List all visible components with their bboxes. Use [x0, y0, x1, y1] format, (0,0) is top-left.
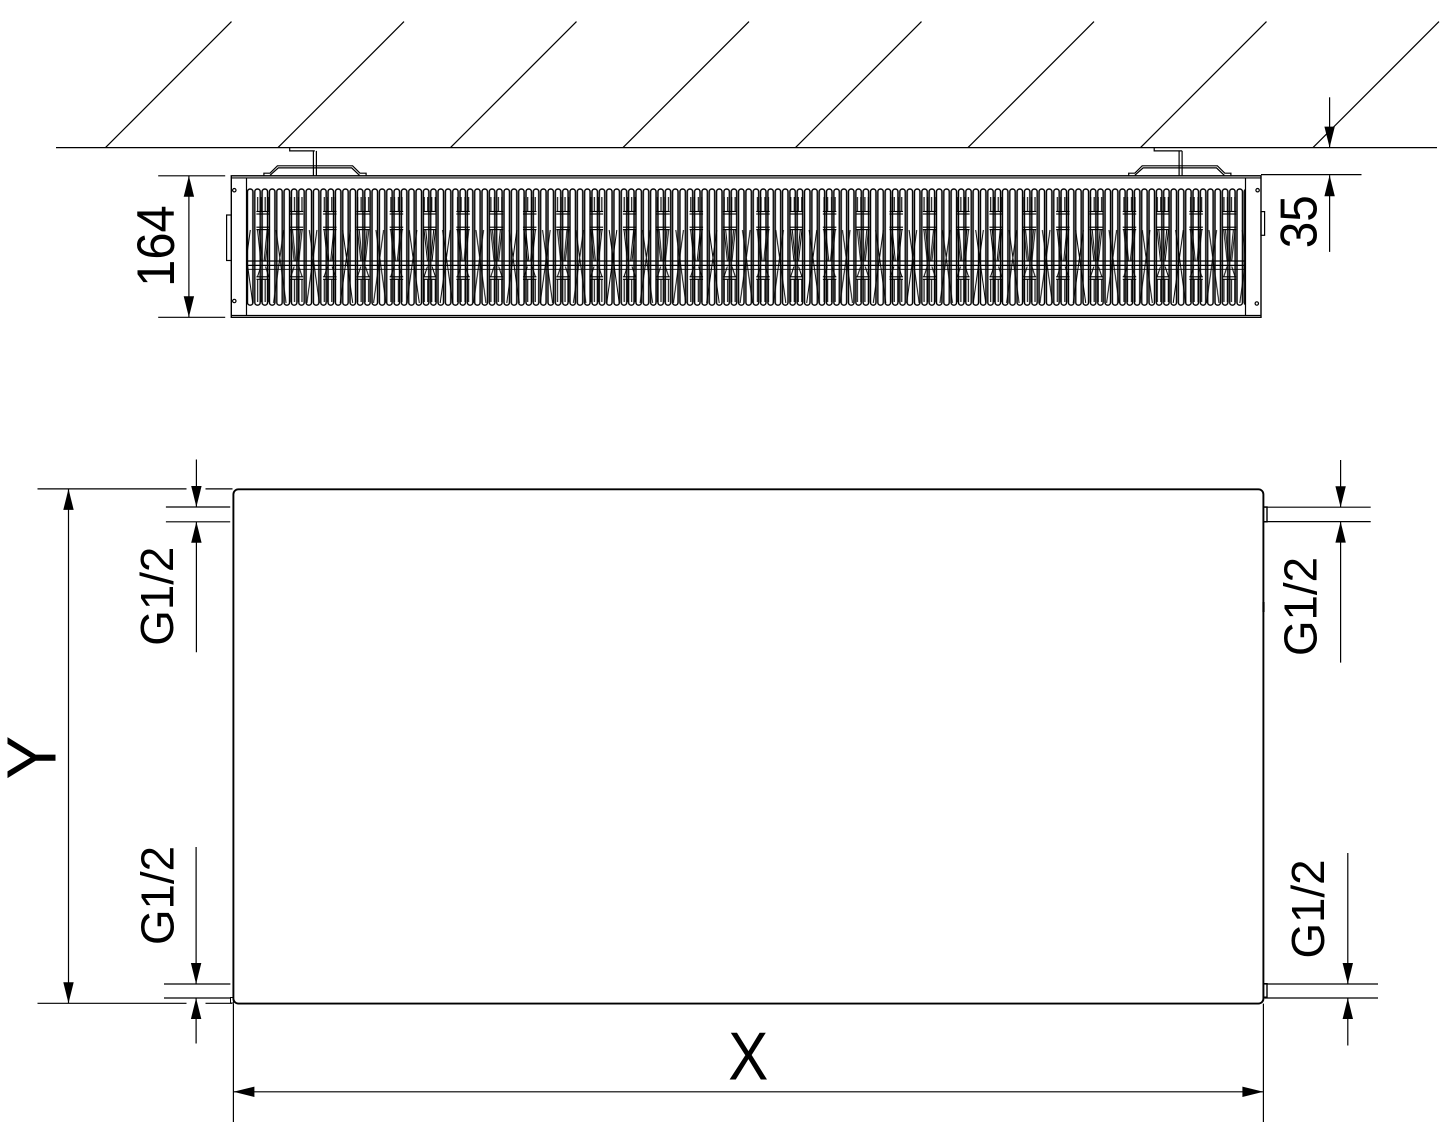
- svg-text:Y: Y: [0, 736, 70, 780]
- svg-text:35: 35: [1270, 195, 1328, 248]
- svg-text:X: X: [728, 1018, 768, 1094]
- svg-text:G1/2: G1/2: [132, 846, 184, 945]
- svg-text:G1/2: G1/2: [1282, 860, 1334, 959]
- svg-text:G1/2: G1/2: [131, 547, 183, 646]
- svg-text:164: 164: [127, 205, 186, 287]
- svg-text:G1/2: G1/2: [1275, 557, 1327, 656]
